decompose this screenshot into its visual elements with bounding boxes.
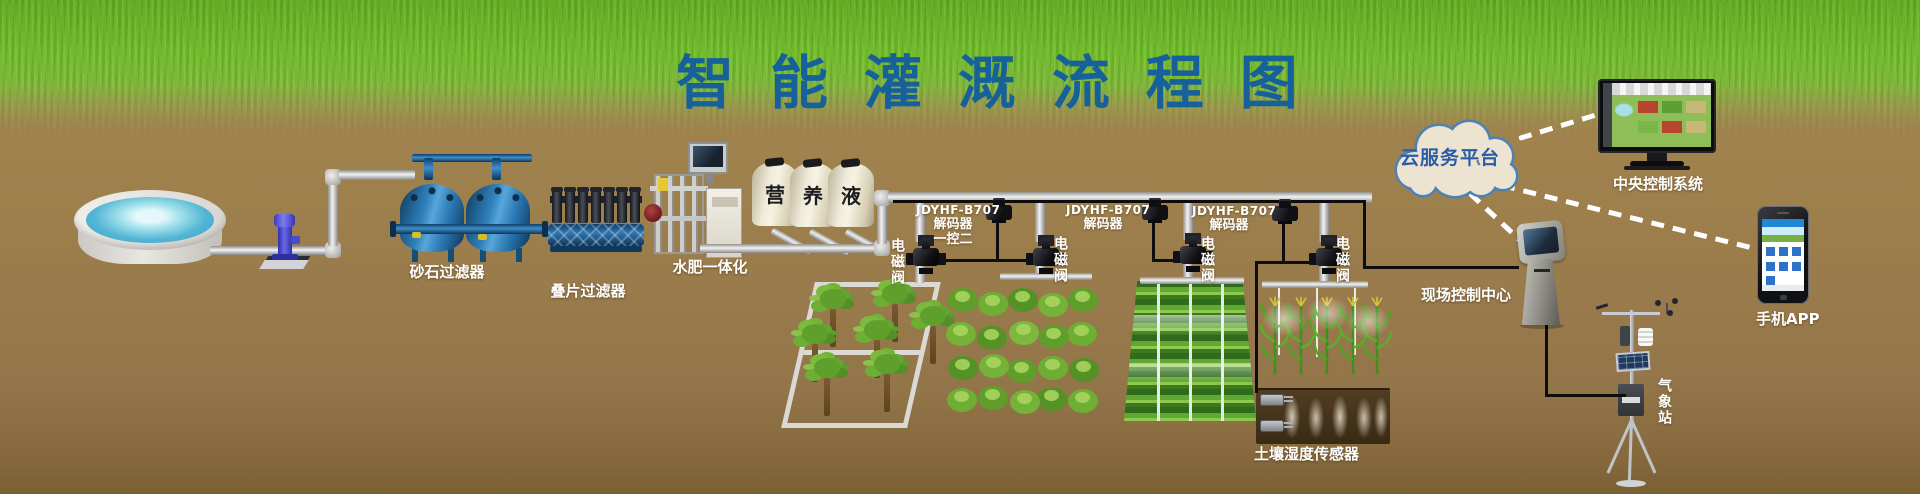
radiation-shield [1638, 328, 1653, 346]
kiosk-screen [1523, 226, 1560, 255]
mobile-app-label: 手机APP [1756, 308, 1810, 329]
field-header-pipe [1000, 273, 1092, 280]
nutrient-tank-char: 液 [828, 180, 874, 209]
decoder-label: JDYHF-B707 解码器 一控二 [916, 203, 990, 248]
sand-filter-label: 砂石过滤器 [402, 261, 492, 282]
sand-filter-tank [466, 184, 530, 252]
solenoid-valve-label: 电磁阀 [890, 238, 904, 286]
sand-filter-tank [400, 184, 464, 252]
fertilizer-label: 水肥一体化 [665, 256, 755, 277]
solar-panel [1615, 351, 1650, 372]
pipe [1035, 202, 1045, 242]
sprinkler-mist [1258, 294, 1392, 360]
control-wire [1545, 394, 1626, 397]
solenoid-valve-label: 电磁阀 [1200, 236, 1214, 284]
soil-sensor-label: 土壤湿度传感器 [1254, 443, 1364, 464]
nutrient-tank: 液 [828, 163, 874, 227]
control-wire [1363, 266, 1519, 269]
page-title: 智能灌溉流程图 [676, 36, 1334, 120]
tree [860, 346, 914, 414]
irrigation-diagram: 智能灌溉流程图 砂石过滤器 [0, 0, 1920, 494]
monitor-screen [1603, 83, 1711, 147]
solenoid-valve-label: 电磁阀 [1053, 236, 1067, 284]
data-logger [1618, 384, 1644, 416]
tree [906, 298, 960, 366]
control-wire [1545, 324, 1548, 397]
control-wire [996, 220, 999, 261]
phone-screen [1762, 219, 1804, 291]
pipe [700, 244, 880, 253]
control-wire [1282, 221, 1285, 263]
control-wire [1152, 220, 1155, 261]
pipe [328, 176, 338, 246]
decoder-label: JDYHF-B707 解码器 [1192, 204, 1266, 233]
machine-screen [688, 142, 728, 174]
sand-filter-riser [492, 158, 501, 180]
tree [800, 350, 854, 418]
shrub-field [948, 288, 1100, 420]
soil-sensor [1260, 394, 1284, 406]
central-system-label: 中央控制系统 [1608, 173, 1708, 194]
sand-filter-riser [424, 158, 433, 180]
central-monitor [1598, 79, 1718, 173]
home-button [1780, 295, 1787, 300]
water-pump [262, 214, 308, 272]
pipe [1319, 202, 1329, 242]
field-header-pipe [1140, 277, 1244, 284]
weather-station-label: 气象站 [1657, 378, 1671, 426]
water-pool [74, 190, 226, 268]
mobile-phone [1757, 206, 1809, 304]
control-wire [1255, 261, 1258, 393]
field-center-label: 现场控制中心 [1418, 284, 1514, 305]
disc-filter-label: 叠片过滤器 [543, 280, 633, 301]
cloud-label: 云服务平台 [1398, 143, 1502, 170]
solenoid-valve-label: 电磁阀 [1335, 236, 1349, 284]
soil-sensor [1260, 420, 1284, 432]
disc-filter [548, 188, 644, 256]
pool-water [86, 197, 214, 243]
pipe [339, 170, 415, 180]
decoder-label: JDYHF-B707 解码器 [1066, 203, 1140, 232]
vegetable-field [1124, 281, 1256, 421]
control-wire [1363, 200, 1366, 269]
